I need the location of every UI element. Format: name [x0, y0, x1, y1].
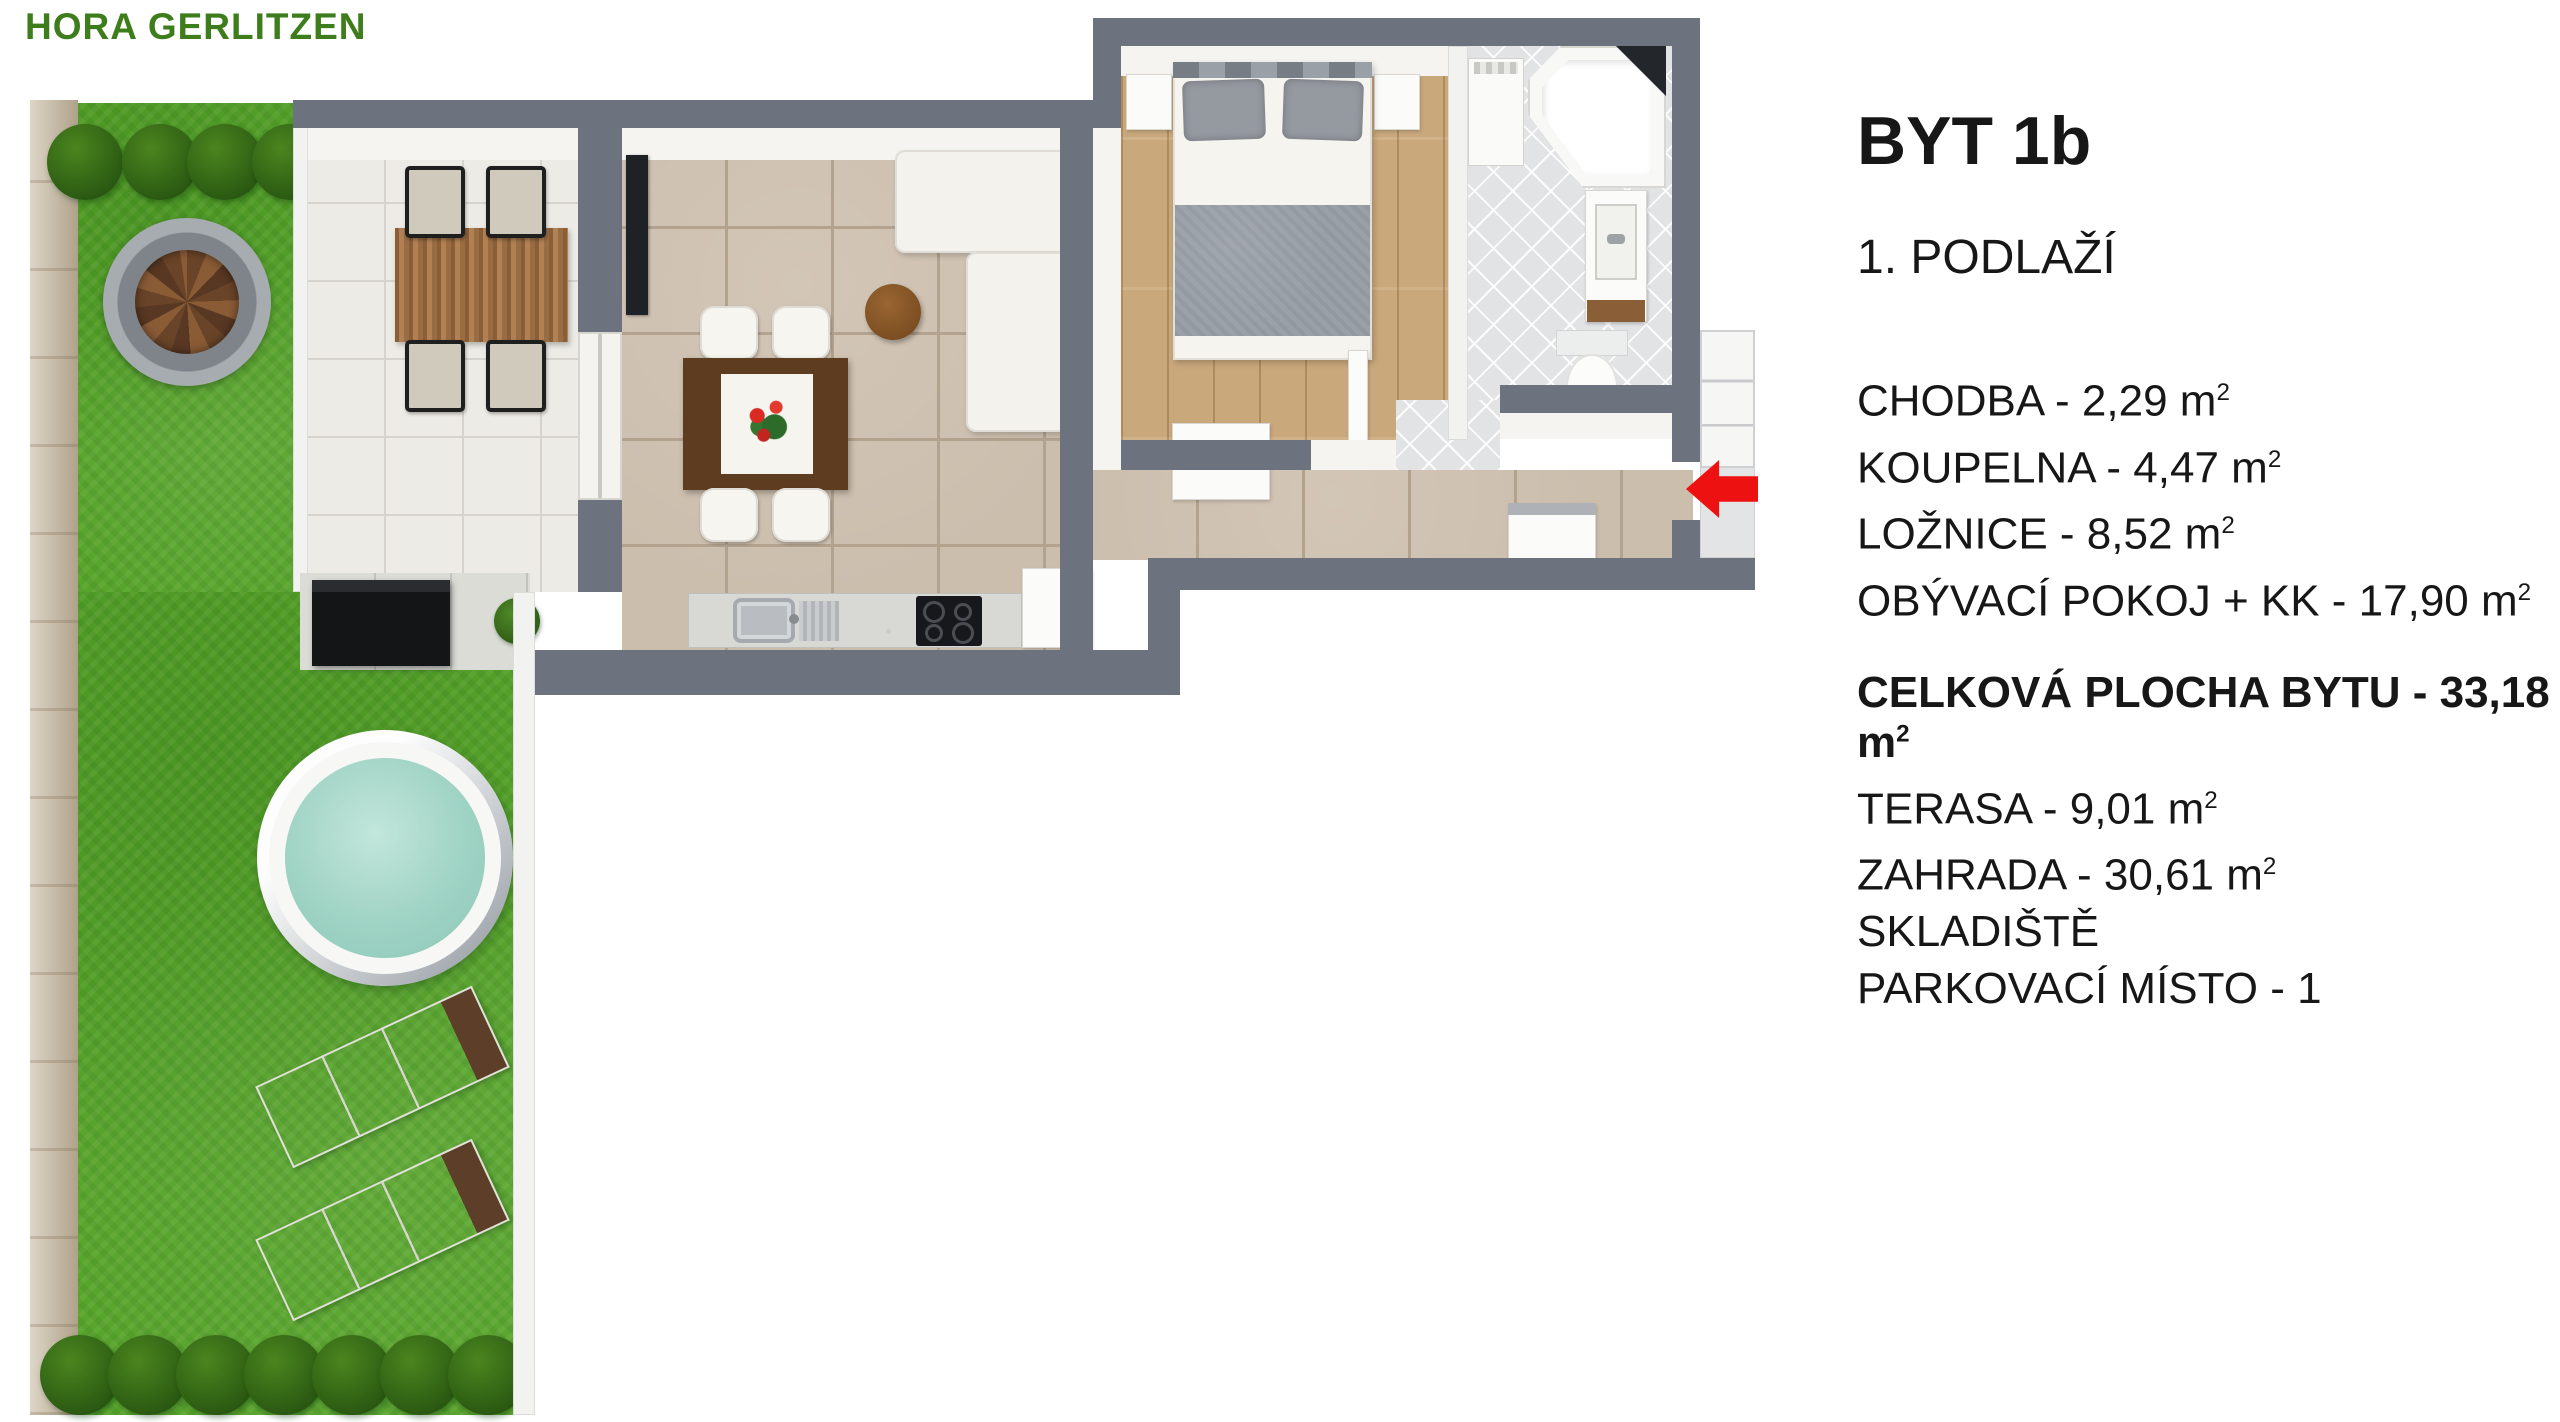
bathroom-vanity	[1585, 190, 1647, 322]
outdoor-area-list: TERASA - 9,01 m2ZAHRADA - 30,61 m2SKLADI…	[1857, 772, 2322, 1017]
terrace-chair	[486, 340, 546, 412]
shower-fixture	[1614, 46, 1666, 104]
storage-shelves	[1700, 330, 1755, 468]
garden-fence	[30, 100, 78, 1415]
hedge-bush	[47, 124, 123, 200]
garden-pool	[257, 730, 513, 986]
tv-screen	[626, 155, 648, 315]
terrace-chair	[405, 340, 465, 412]
dining-chair	[700, 488, 758, 542]
floorplan-page: HORA GERLITZEN	[0, 0, 2560, 1422]
terrace-chair	[486, 166, 546, 238]
cabinet-top	[1508, 503, 1596, 515]
bedroom-bathroom-partition	[1448, 46, 1468, 440]
terrace-left-wall	[293, 100, 308, 592]
apartment-title: BYT 1b	[1857, 102, 2091, 180]
wall-bedroom-bottom	[1121, 440, 1311, 470]
floorplan-graphic	[0, 0, 1800, 1422]
dining-table	[683, 358, 848, 490]
terrace-table	[395, 228, 568, 342]
burner	[952, 622, 974, 644]
room-area-list: CHODBA - 2,29 m2KOUPELNA - 4,47 m2LOŽNIC…	[1857, 364, 2531, 631]
vanity-faucet	[1607, 234, 1625, 244]
area-row: SKLADIŠTĚ	[1857, 903, 2322, 960]
coffee-table	[865, 284, 921, 340]
flower-centerpiece	[741, 396, 795, 452]
wall-right	[1672, 18, 1700, 462]
terrace-sliding-door	[578, 332, 622, 500]
area-row: OBÝVACÍ POKOJ + KK - 17,90 m2	[1857, 564, 2531, 631]
wall-bathroom-bottom	[1500, 385, 1672, 413]
kitchen-sink	[733, 598, 795, 643]
dining-chair	[700, 306, 758, 360]
faucet	[789, 614, 799, 624]
pool-water	[285, 758, 485, 958]
total-area-line: CELKOVÁ PLOCHA BYTU - 33,18 m2	[1857, 668, 2557, 768]
burner	[923, 601, 945, 623]
washer-panel	[1474, 62, 1518, 74]
wall-terrace-divider-lower	[578, 500, 622, 592]
vanity-base	[1587, 300, 1645, 322]
wall-bottom-hallway	[1180, 558, 1755, 590]
squared-sup: 2	[2216, 379, 2229, 406]
sink-drainer	[799, 601, 839, 641]
area-row: ZAHRADA - 30,61 m2	[1857, 838, 2322, 904]
nightstand	[1374, 74, 1420, 130]
wall-terrace-divider-upper	[578, 128, 622, 332]
blanket	[1175, 205, 1370, 336]
burner	[925, 624, 943, 642]
squared-sup: 2	[2204, 787, 2217, 814]
shoe-cabinet	[1508, 503, 1596, 559]
wall-bedroom-top	[1093, 18, 1700, 46]
nightstand	[1126, 74, 1172, 130]
wall-living-bedroom	[1060, 128, 1093, 650]
wall-bedroom-left	[1093, 18, 1121, 128]
bedroom-left-wall-face	[1093, 128, 1121, 470]
area-row: LOŽNICE - 8,52 m2	[1857, 497, 2531, 564]
wall-right-stub	[1672, 520, 1700, 558]
squared-sup: 2	[2518, 579, 2531, 606]
wall-bottom-connector	[1148, 558, 1180, 695]
double-bed	[1173, 62, 1372, 360]
grill-box	[312, 580, 450, 666]
bedroom-door-threshold	[1311, 440, 1396, 470]
squared-sup: 2	[2221, 512, 2234, 539]
area-row: KOUPELNA - 4,47 m2	[1857, 431, 2531, 498]
wall-bottom-living	[535, 650, 1180, 695]
area-row: CELKOVÁ PLOCHA BYTU - 33,18 m2	[1857, 668, 2557, 768]
area-row: CHODBA - 2,29 m2	[1857, 364, 2531, 431]
area-row: TERASA - 9,01 m2	[1857, 772, 2322, 838]
terrace-chair	[405, 166, 465, 238]
toilet-tank	[1556, 330, 1628, 356]
area-row: PARKOVACÍ MÍSTO - 1	[1857, 960, 2322, 1017]
garden-right-wall	[513, 592, 535, 1415]
squared-sup: 2	[2268, 446, 2281, 473]
dining-chair	[772, 488, 830, 542]
floor-label: 1. PODLAŽÍ	[1857, 230, 2116, 285]
wall-top	[293, 100, 1100, 128]
cooktop	[916, 596, 982, 646]
pillow	[1282, 79, 1364, 142]
headboard	[1173, 62, 1372, 78]
washing-machine	[1468, 58, 1524, 166]
burner	[954, 603, 972, 621]
wall-bathroom-bottom-face	[1500, 413, 1672, 439]
dining-chair	[772, 306, 830, 360]
bedroom-door-leaf	[1348, 350, 1368, 442]
squared-sup: 2	[1896, 720, 1909, 747]
squared-sup: 2	[2263, 853, 2276, 880]
pillow	[1182, 79, 1266, 142]
fire-pit-logs	[135, 250, 239, 354]
